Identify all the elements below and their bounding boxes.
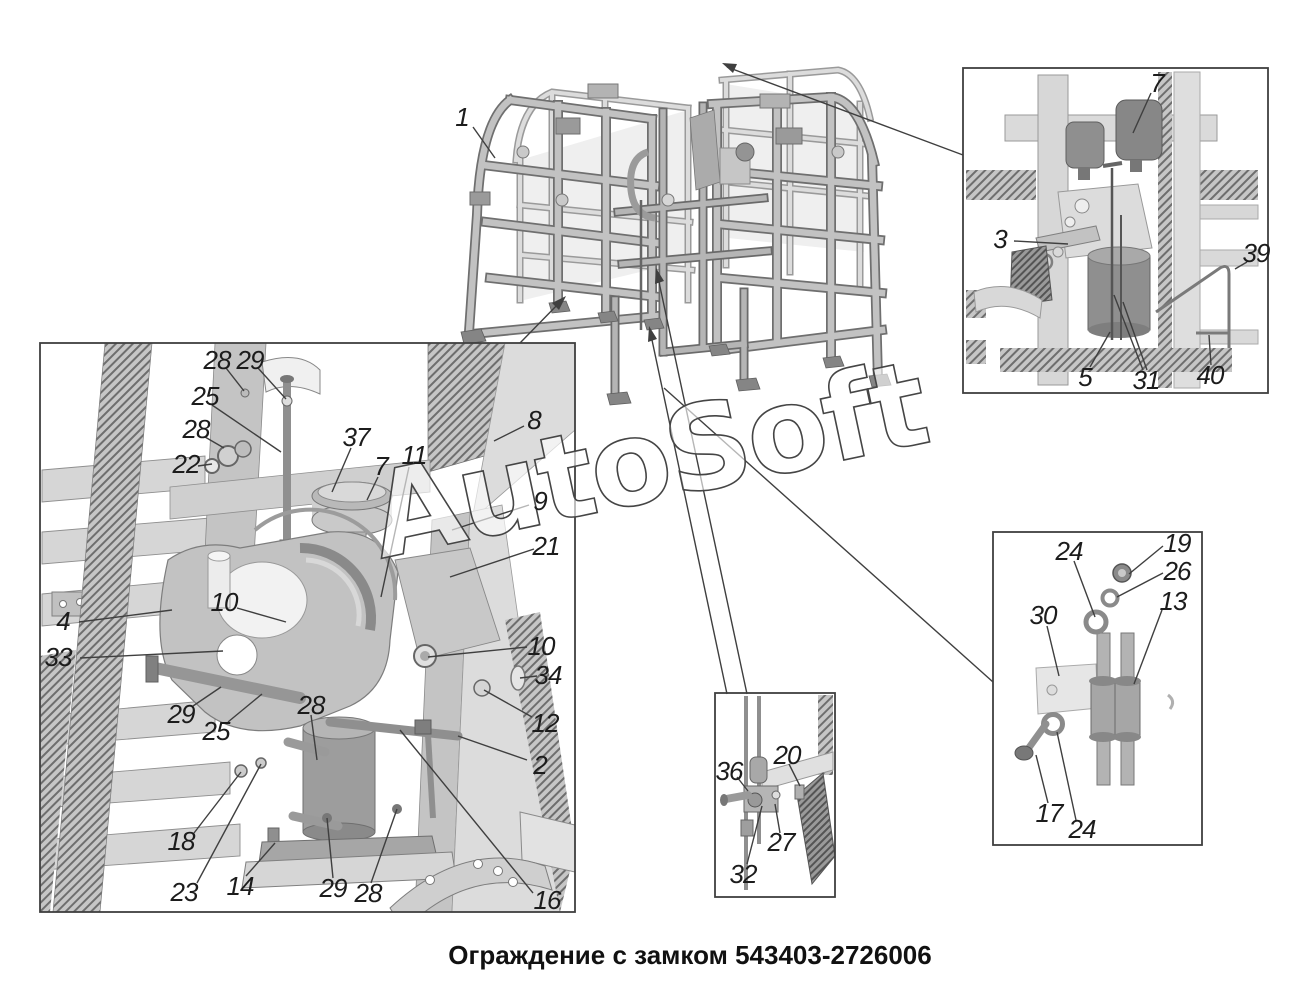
callout-14: 14	[227, 873, 254, 899]
callout-30: 30	[1030, 602, 1057, 628]
callout-20: 20	[774, 742, 801, 768]
callout-36: 36	[716, 758, 743, 784]
callout-10: 10	[211, 589, 238, 615]
callout-27: 27	[768, 829, 795, 855]
callout-17: 17	[1036, 800, 1063, 826]
callout-11: 11	[402, 442, 427, 468]
callout-25: 25	[192, 383, 219, 409]
callout-34: 34	[535, 662, 562, 688]
callout-32: 32	[730, 861, 757, 887]
callout-31: 31	[1133, 367, 1160, 393]
parts-diagram-page: AutoSoft 1 28 29 25 28 22 37 7 11 8 9 21…	[0, 0, 1307, 1003]
figure-caption: Ограждение с замком 543403-2726006	[448, 940, 931, 971]
callout-2: 2	[533, 752, 546, 778]
callout-40: 40	[1197, 362, 1224, 388]
callout-28: 28	[183, 416, 210, 442]
callout-29: 29	[168, 701, 195, 727]
callout-21: 21	[533, 533, 560, 559]
callout-5: 5	[1078, 364, 1091, 390]
callout-7: 7	[374, 453, 387, 479]
callout-24: 24	[1056, 538, 1083, 564]
callout-3: 3	[993, 226, 1006, 252]
callout-22: 22	[173, 451, 200, 477]
callout-4: 4	[56, 608, 69, 634]
callout-1: 1	[455, 104, 468, 130]
callout-9: 9	[533, 488, 546, 514]
callout-8: 8	[527, 407, 540, 433]
callout-39: 39	[1243, 240, 1270, 266]
callout-12: 12	[532, 710, 559, 736]
callout-23: 23	[171, 879, 198, 905]
callout-25: 25	[203, 718, 230, 744]
callout-18: 18	[168, 828, 195, 854]
callout-33: 33	[45, 644, 72, 670]
callout-13: 13	[1160, 588, 1187, 614]
detail-box-bottom-right-art	[1015, 564, 1173, 785]
callout-28: 28	[355, 880, 382, 906]
diagram-artwork: AutoSoft	[0, 0, 1307, 1003]
callout-10: 10	[528, 633, 555, 659]
callout-7: 7	[1150, 70, 1163, 96]
detail-box-top-right-art	[966, 72, 1258, 388]
callout-19: 19	[1164, 530, 1191, 556]
callout-28: 28	[204, 347, 231, 373]
callout-24: 24	[1069, 816, 1096, 842]
callout-28: 28	[298, 692, 325, 718]
callout-37: 37	[343, 424, 370, 450]
callout-29: 29	[320, 875, 347, 901]
callout-16: 16	[534, 887, 561, 913]
callout-26: 26	[1164, 558, 1191, 584]
callout-29: 29	[237, 347, 264, 373]
